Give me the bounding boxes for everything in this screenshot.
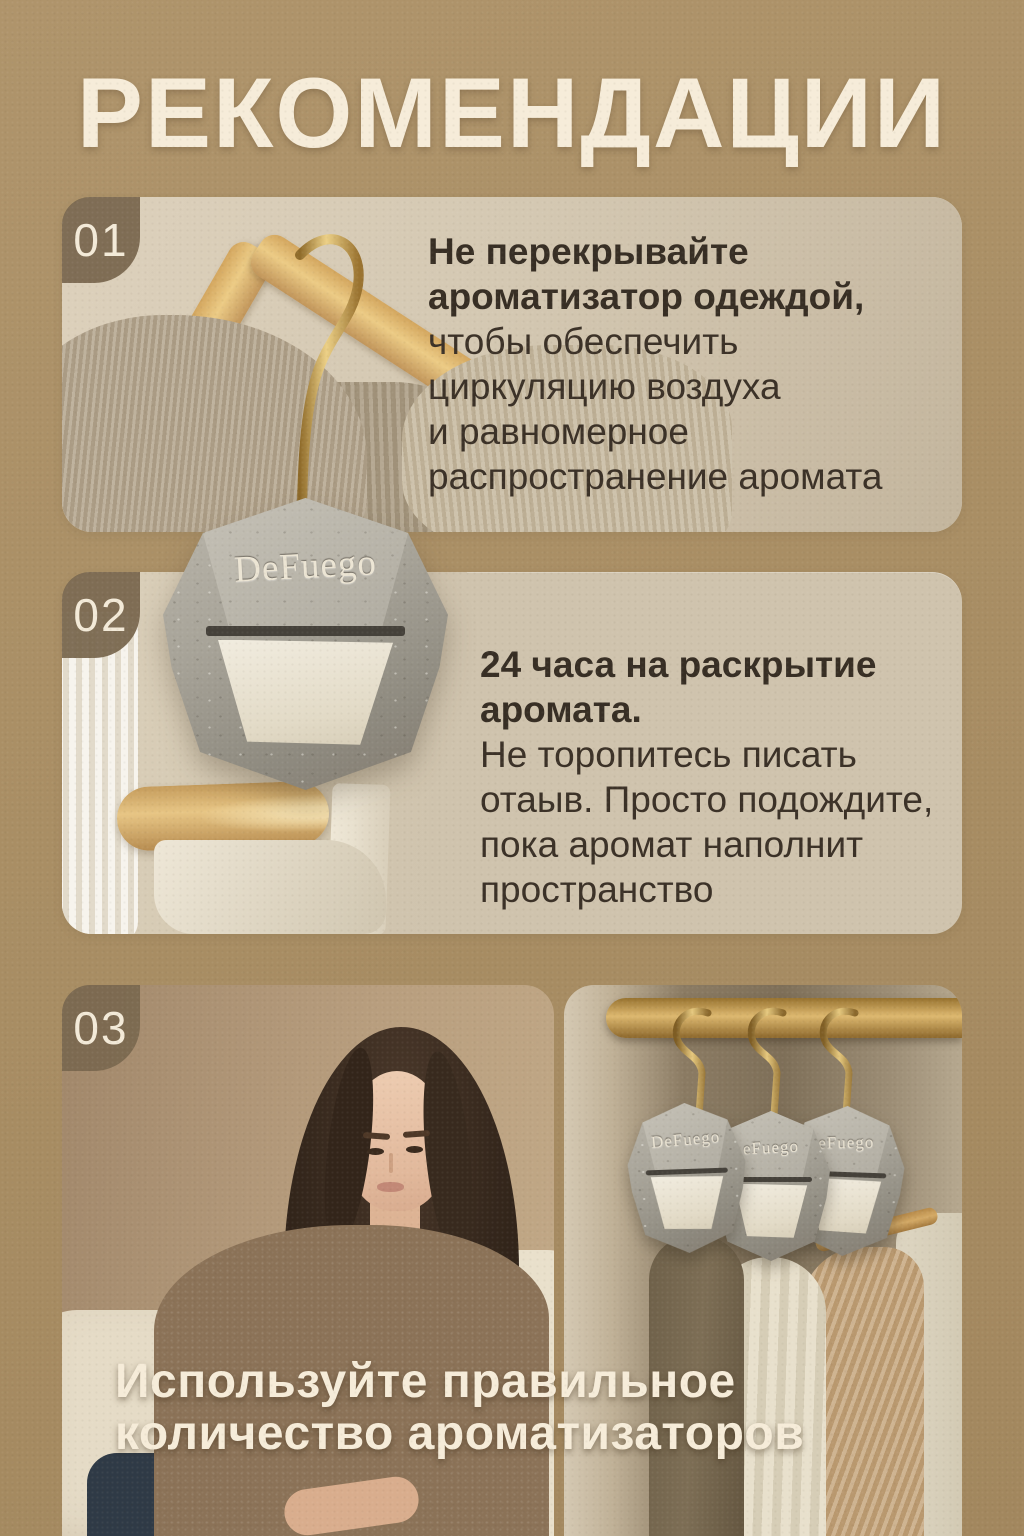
card-2-body-line: Не торопитесь писать (480, 732, 933, 777)
card-1-heading-line: ароматизатор одеждой, (428, 274, 882, 319)
diffuser-slot (206, 626, 406, 635)
card-2-body-line: отаыв. Просто подождите, (480, 777, 933, 822)
section-3-caption: Используйте правильное количество аромат… (115, 1356, 804, 1460)
card-2-text: 24 часа на раскрытие аромата. Не торопит… (480, 642, 933, 912)
card-2-heading-line: аромата. (480, 687, 933, 732)
fragrance-diffuser-1: DeFuego (625, 1101, 748, 1255)
gold-hook-icon (811, 1005, 871, 1117)
card-1-text: Не перекрывайте ароматизатор одеждой, чт… (428, 229, 882, 499)
card-2-body-line: пока аромат наполнит (480, 822, 933, 867)
caption-line: количество ароматизаторов (115, 1408, 804, 1460)
gold-hook-icon (664, 1005, 724, 1117)
card-1-body-line: циркуляцию воздуха (428, 364, 882, 409)
card-2-body-line: пространство (480, 867, 933, 912)
caption-line: Используйте правильное (115, 1356, 804, 1408)
card-2-heading-line: 24 часа на раскрытие (480, 642, 933, 687)
card-1-heading-line: Не перекрывайте (428, 229, 882, 274)
eye-left (367, 1148, 384, 1155)
nose-shadow (389, 1153, 393, 1173)
card-1-body-line: и равномерное (428, 409, 882, 454)
lips (377, 1182, 404, 1192)
fragrance-diffuser-product: DeFuego (163, 498, 448, 790)
recommendation-card-1: Не перекрывайте ароматизатор одеждой, чт… (62, 197, 962, 532)
gold-hook-icon (739, 1005, 799, 1117)
card-1-body-line: распространение аромата (428, 454, 882, 499)
poster-canvas: РЕКОМЕНДАЦИИ Не перекрывайте ароматизато… (0, 0, 1024, 1536)
eye-right (406, 1146, 423, 1153)
card-1-body-line: чтобы обеспечить (428, 319, 882, 364)
page-title: РЕКОМЕНДАЦИИ (0, 56, 1024, 170)
gold-hook-icon (242, 215, 382, 515)
